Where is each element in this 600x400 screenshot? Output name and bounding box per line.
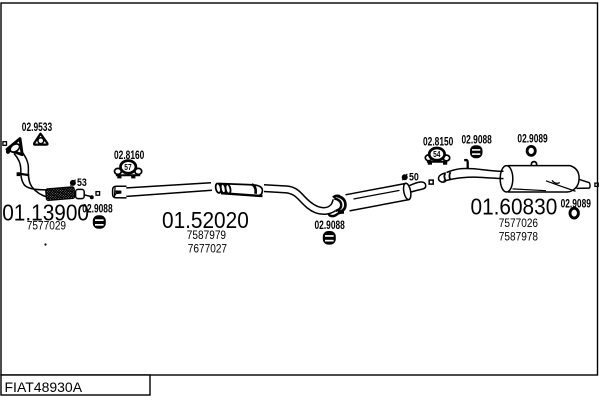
- svg-text:FIAT48930A: FIAT48930A: [5, 379, 83, 395]
- svg-text:7587978: 7587978: [499, 231, 538, 244]
- svg-text:54: 54: [433, 149, 441, 159]
- svg-text:7677027: 7677027: [188, 243, 227, 256]
- svg-text:02.9089: 02.9089: [517, 133, 548, 146]
- svg-text:57: 57: [124, 162, 131, 172]
- svg-text:50: 50: [409, 172, 419, 184]
- svg-text:01.60830: 01.60830: [471, 193, 558, 219]
- svg-text:7577026: 7577026: [499, 217, 538, 230]
- svg-text:7577029: 7577029: [27, 220, 66, 233]
- svg-text:02.9088: 02.9088: [315, 220, 346, 233]
- svg-text:02.9533: 02.9533: [22, 122, 53, 135]
- svg-text:53: 53: [77, 177, 87, 189]
- svg-text:7587979: 7587979: [187, 229, 226, 242]
